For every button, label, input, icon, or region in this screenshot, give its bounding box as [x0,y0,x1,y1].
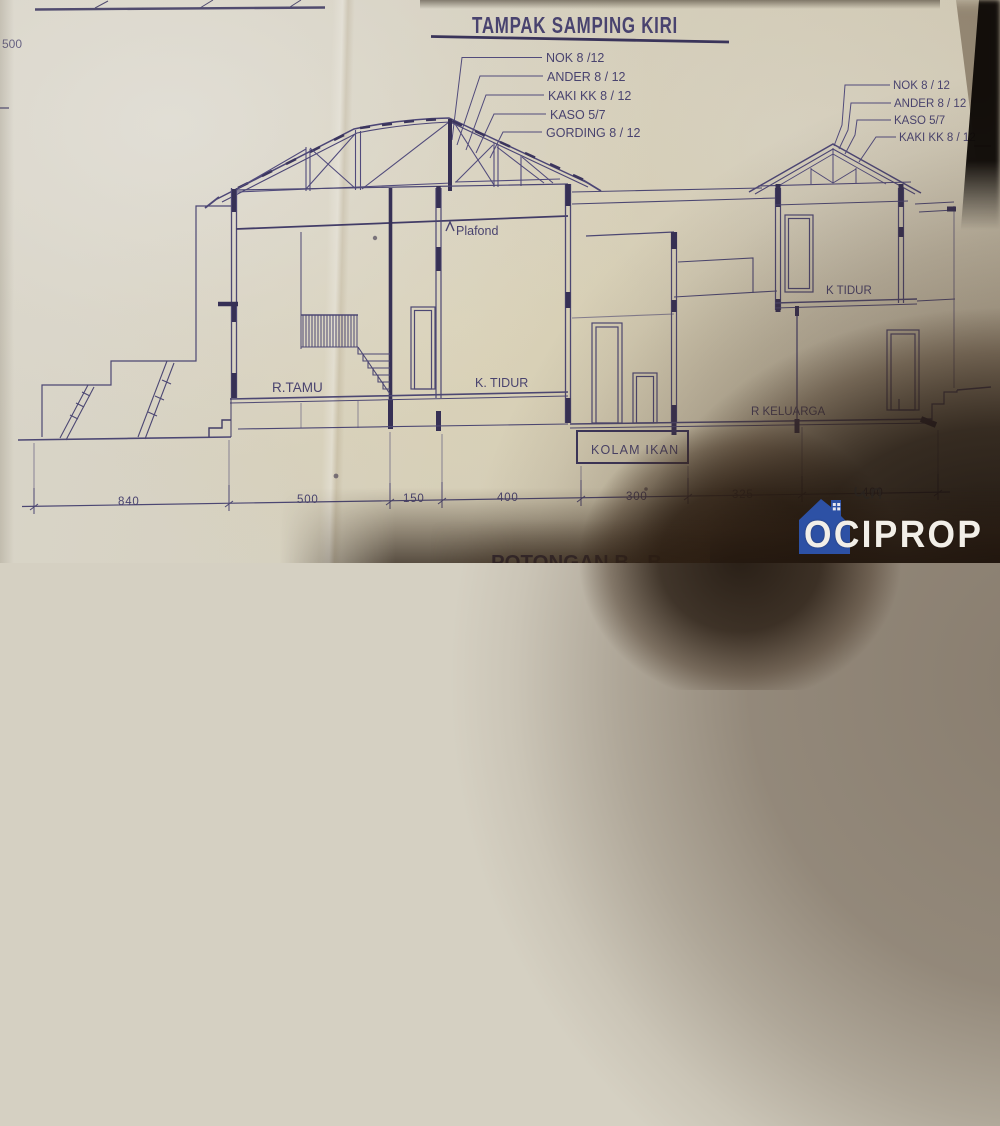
svg-text:400: 400 [497,492,519,504]
svg-text:R KELUARGA: R KELUARGA [751,406,825,418]
svg-text:KOLAM IKAN: KOLAM IKAN [591,443,679,457]
svg-text:150: 150 [403,493,425,505]
svg-text:GORDING 8 / 12: GORDING 8 / 12 [546,126,641,140]
svg-text:NOK 8 /12: NOK 8 /12 [546,51,604,65]
svg-text:ANDER 8 / 12: ANDER 8 / 12 [547,70,626,84]
svg-text:K. TIDUR: K. TIDUR [475,376,528,390]
svg-text:840: 840 [118,496,140,508]
svg-text:POTONGAN B - B: POTONGAN B - B [491,552,662,563]
svg-text:R.TAMU: R.TAMU [272,380,323,395]
svg-text:300: 300 [626,491,648,503]
svg-text:500: 500 [297,494,319,506]
svg-text:325: 325 [732,489,754,501]
svg-text:TAMPAK SAMPING KIRI: TAMPAK SAMPING KIRI [472,12,678,38]
svg-text:KASO 5/7: KASO 5/7 [550,108,606,122]
svg-text:500: 500 [2,37,22,51]
svg-text:KASO 5/7: KASO 5/7 [894,115,945,127]
svg-text:ANDER 8 / 12: ANDER 8 / 12 [894,98,966,110]
svg-text:K TIDUR: K TIDUR [826,285,872,297]
svg-text:KAKI KK 8 / 12: KAKI KK 8 / 12 [548,89,631,103]
svg-text:Plafond: Plafond [456,224,498,238]
svg-text:NOK 8 / 12: NOK 8 / 12 [893,80,950,92]
svg-text:KAKI KK 8 / 12: KAKI KK 8 / 12 [899,132,976,144]
